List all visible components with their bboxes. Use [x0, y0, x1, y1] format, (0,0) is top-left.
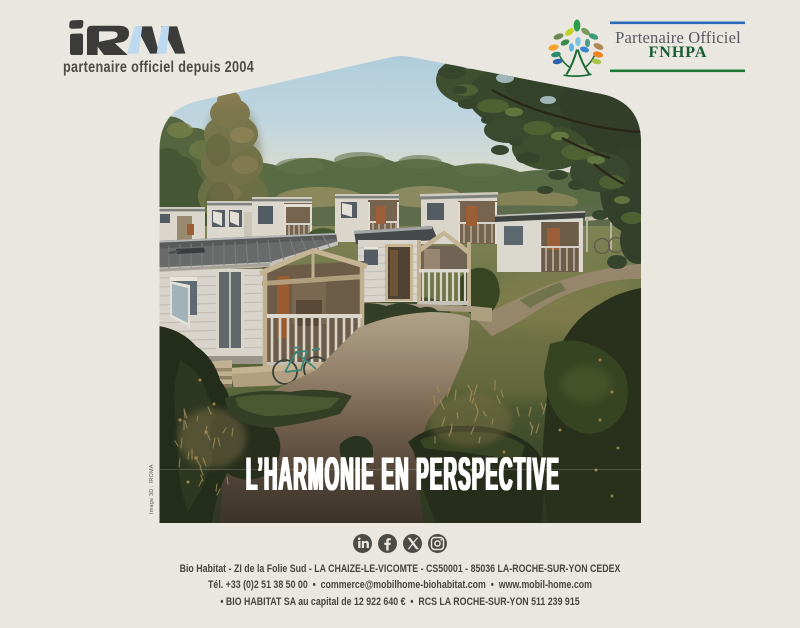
svg-text:L’HARMONIE EN PERSPECTIVE: L’HARMONIE EN PERSPECTIVE: [246, 448, 560, 501]
